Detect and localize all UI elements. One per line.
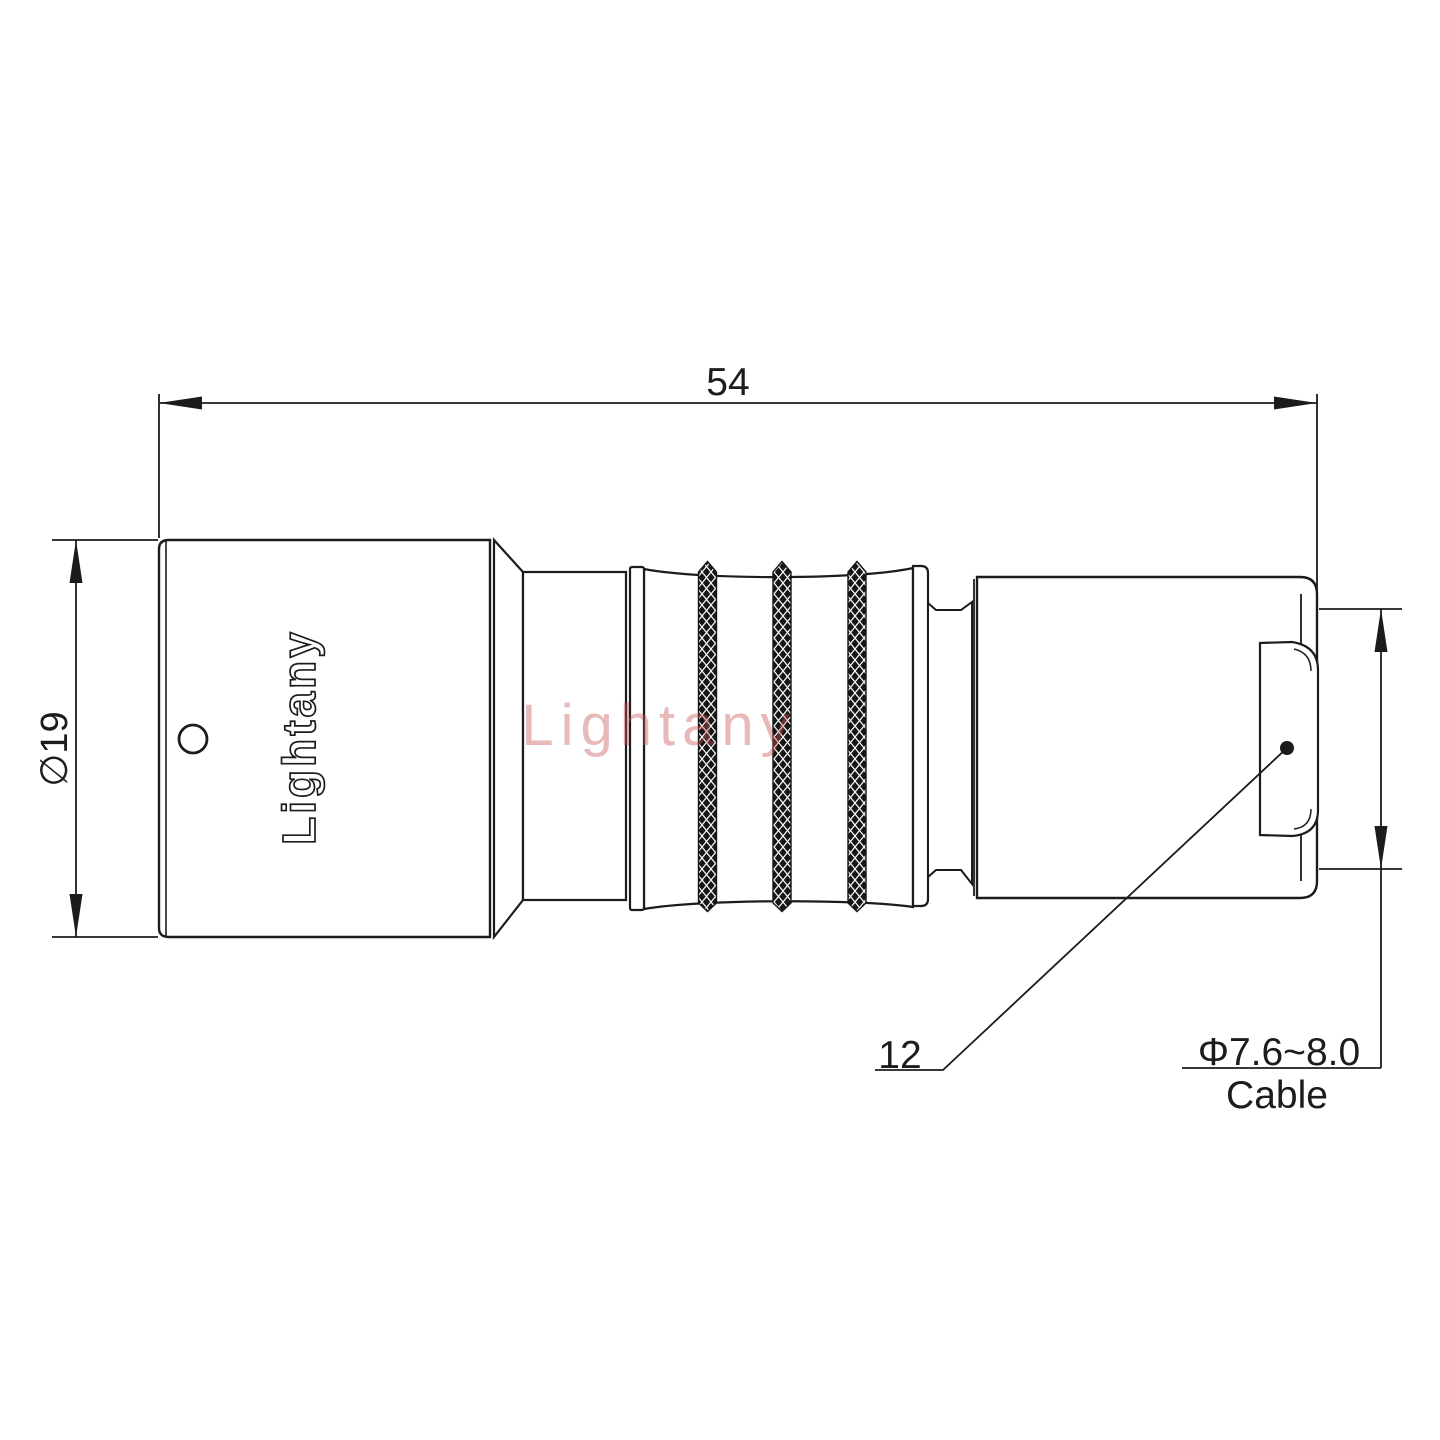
leader-dot [1280,741,1294,755]
knurl-band [848,562,866,912]
dim-label-cable-diameter: Φ7.6~8.0 [1198,1033,1360,1072]
arrowhead-left [159,397,202,410]
neck-groove [928,602,972,884]
dim-label-overall-length: 54 [706,363,749,402]
cable-boot [1260,642,1318,836]
arrowhead-right [1274,397,1317,410]
dim-label-body-diameter: ∅19 [36,711,74,786]
arrowhead-down [70,894,83,937]
technical-drawing-page: 54 ∅19 Lightany Lightany 12 Φ7.6~8.0 Cab… [0,0,1440,1440]
watermark-text: Lightany [521,697,796,755]
brand-engraving-text: Lightany [276,629,322,845]
arrowhead-up [1375,609,1388,652]
dim-label-cable: Cable [1226,1076,1328,1115]
body-pin-hole [179,725,207,753]
taper-cone [494,540,523,937]
arrowhead-up [70,540,83,583]
collar-ring [913,566,928,906]
arrowhead-down [1375,826,1388,869]
dim-label-boot-length: 12 [878,1036,921,1075]
